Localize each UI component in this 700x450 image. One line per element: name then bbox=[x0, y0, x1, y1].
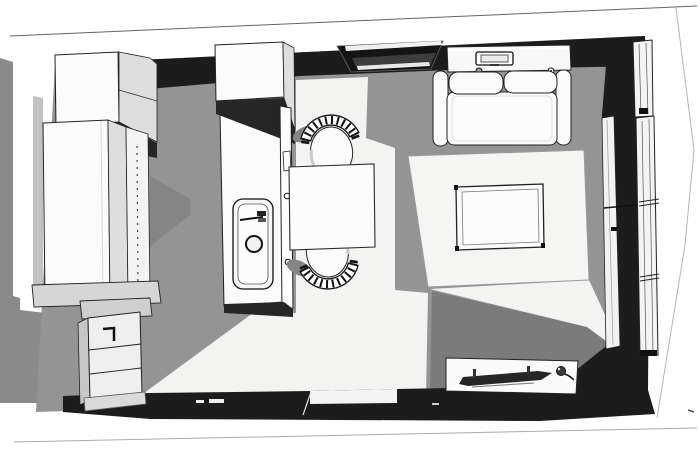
sofa bbox=[433, 70, 571, 146]
sink-unit bbox=[215, 42, 295, 317]
left-wall-inner-strip bbox=[33, 96, 43, 300]
floor-plan-render bbox=[0, 0, 700, 450]
coffee-table-foot-tl bbox=[454, 185, 458, 190]
window-upper-pane bbox=[633, 40, 653, 117]
upper-sink-cabinet-front bbox=[215, 42, 284, 101]
drawer-unit-front bbox=[88, 312, 142, 400]
floor-mark-small bbox=[196, 400, 204, 403]
dining-table bbox=[289, 164, 375, 250]
window-mullion-column bbox=[636, 116, 658, 356]
door-threshold bbox=[310, 389, 397, 404]
faucet-base bbox=[258, 218, 266, 222]
coffee-table bbox=[456, 184, 544, 250]
sofa-back-cushion-left bbox=[449, 72, 503, 94]
drain bbox=[246, 236, 262, 252]
wall-cabinet-front bbox=[55, 52, 119, 125]
laptop-notch bbox=[490, 64, 499, 66]
coffee-table-foot-br bbox=[541, 243, 545, 248]
knob-object bbox=[557, 367, 566, 376]
tall-cabinet-front bbox=[43, 120, 110, 300]
window-hardware-top bbox=[639, 108, 648, 114]
window-handle bbox=[611, 227, 618, 231]
window-hardware-bottom bbox=[640, 350, 657, 356]
tv-mount-right bbox=[527, 366, 530, 375]
sofa-arm-left bbox=[433, 71, 448, 146]
sofa-back-cushion-right bbox=[504, 71, 557, 93]
tall-cabinet-side bbox=[108, 120, 128, 298]
floor-mark-large bbox=[209, 399, 224, 403]
knob-highlight bbox=[558, 368, 560, 370]
coffee-table-foot-bl bbox=[455, 246, 459, 251]
floorplan-canvas bbox=[0, 0, 700, 450]
shelf-panel bbox=[126, 127, 150, 296]
wall-niche bbox=[337, 41, 443, 72]
floor-mark-right bbox=[432, 403, 439, 405]
laptop-screen bbox=[481, 55, 508, 62]
faucet-body bbox=[257, 211, 266, 216]
sofa-arm-right bbox=[556, 70, 571, 145]
sofa-seat bbox=[447, 92, 557, 145]
tv-mount-left bbox=[473, 369, 476, 378]
